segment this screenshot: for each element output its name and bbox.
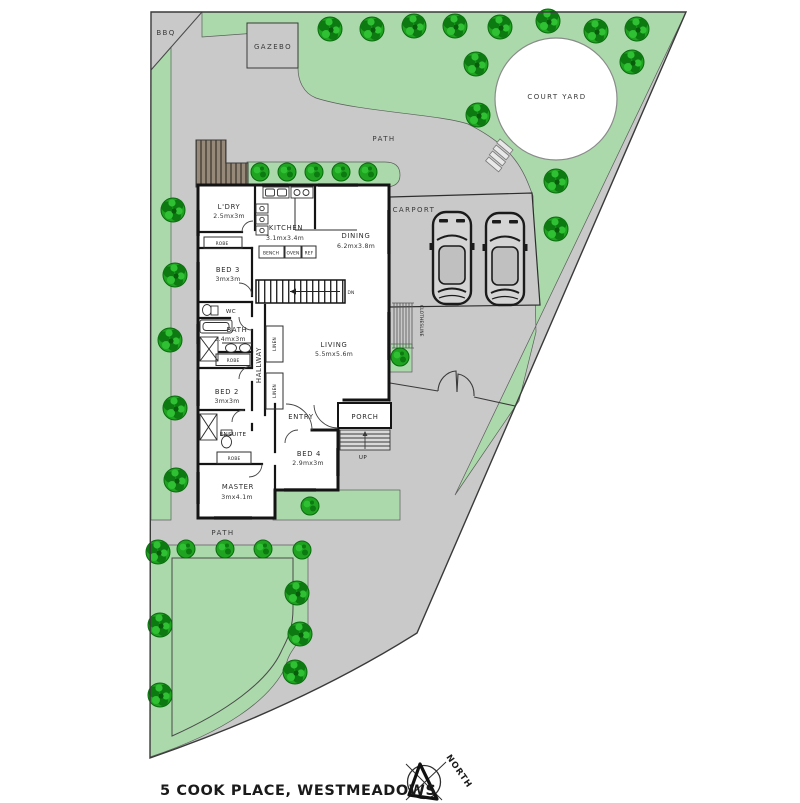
bed3-dims: 3mx3m <box>215 276 240 283</box>
wc-label: WC <box>226 309 236 315</box>
tree-icon <box>283 660 307 684</box>
tree-icon <box>544 169 568 193</box>
tree-icon <box>164 468 188 492</box>
tree-icon <box>288 622 312 646</box>
bush-icon <box>301 497 319 515</box>
clothesline-label: CLOTHESLINE <box>418 305 424 337</box>
tree-icon <box>584 19 608 43</box>
ensuite-label: ENSUITE <box>220 432 247 438</box>
entry-label: ENTRY <box>288 413 314 421</box>
robe-label: ROBE <box>228 456 241 462</box>
laundry-label: L'DRY <box>218 203 241 211</box>
bed2-label: BED 2 <box>215 388 239 396</box>
tree-icon <box>148 683 172 707</box>
living-label: LIVING <box>321 341 348 349</box>
garden-patch-south <box>273 490 400 520</box>
bath-dims: 2.4mx3m <box>214 336 246 343</box>
bench-label: BENCH <box>263 251 279 257</box>
tree-icon <box>148 613 172 637</box>
stairs <box>256 280 345 303</box>
tree-icon <box>464 52 488 76</box>
bush-icon <box>177 540 195 558</box>
bbq-label: BBQ <box>156 29 175 37</box>
kitchen-dims: 3.1mx3.4m <box>266 235 304 242</box>
tree-icon <box>285 581 309 605</box>
path-bottom-label: PATH <box>211 529 234 537</box>
bed4-label: BED 4 <box>297 450 321 458</box>
bush-icon <box>305 163 323 181</box>
master-dims: 3mx4.1m <box>221 494 253 501</box>
tree-icon <box>625 17 649 41</box>
laundry-dims: 2.5mx3m <box>213 213 245 220</box>
site-plan-drawing: BBQ GAZEBO PATH COURT YARD CARPORT CLOTH… <box>0 0 800 803</box>
gazebo-label: GAZEBO <box>254 43 292 51</box>
ref-label: REF <box>305 251 314 257</box>
dn-label: DN <box>348 290 355 296</box>
path-top-label: PATH <box>372 135 395 143</box>
tree-icon <box>163 396 187 420</box>
tree-icon <box>402 14 426 38</box>
carport-label: CARPORT <box>393 206 436 214</box>
bed4-dims: 2.9mx3m <box>292 460 324 467</box>
tree-icon <box>360 17 384 41</box>
master-label: MASTER <box>222 483 254 491</box>
tree-icon <box>443 14 467 38</box>
dining-label: DINING <box>342 232 371 240</box>
tree-icon <box>620 50 644 74</box>
oven-label: OVEN <box>287 251 300 257</box>
bush-icon <box>278 163 296 181</box>
bed3-label: BED 3 <box>216 266 240 274</box>
bush-icon <box>251 163 269 181</box>
tree-icon <box>161 198 185 222</box>
tree-icon <box>544 217 568 241</box>
robe-label: ROBE <box>227 358 240 364</box>
bush-icon <box>293 541 311 559</box>
bush-icon <box>391 348 409 366</box>
tree-icon <box>318 17 342 41</box>
dining-dims: 6.2mx3.8m <box>337 243 375 250</box>
bed2-dims: 3mx3m <box>214 398 239 405</box>
bush-icon <box>254 540 272 558</box>
site-plan-page: BBQ GAZEBO PATH COURT YARD CARPORT CLOTH… <box>0 0 800 803</box>
kitchen-label: KITCHEN <box>269 224 303 232</box>
porch-structure <box>338 403 391 450</box>
tree-icon <box>466 103 490 127</box>
linen-label: LINEN <box>272 384 278 398</box>
bush-icon <box>359 163 377 181</box>
tree-icon <box>163 263 187 287</box>
hallway-label: HALLWAY <box>255 347 263 383</box>
car-icon <box>430 212 475 304</box>
porch-label: PORCH <box>351 413 378 421</box>
bath-label: BATH <box>227 326 248 334</box>
bush-icon <box>216 540 234 558</box>
courtyard-label: COURT YARD <box>527 93 586 101</box>
bush-icon <box>332 163 350 181</box>
living-dims: 5.5mx5.6m <box>315 351 353 358</box>
robe-label: ROBE <box>216 241 229 247</box>
up-label: UP <box>359 455 367 461</box>
page-title: 5 COOK PLACE, WESTMEADOWS <box>160 783 437 799</box>
linen-label: LINEN <box>272 337 278 351</box>
tree-icon <box>158 328 182 352</box>
car-icon <box>483 213 528 305</box>
tree-icon <box>488 15 512 39</box>
north-label: NORTH <box>444 753 474 790</box>
